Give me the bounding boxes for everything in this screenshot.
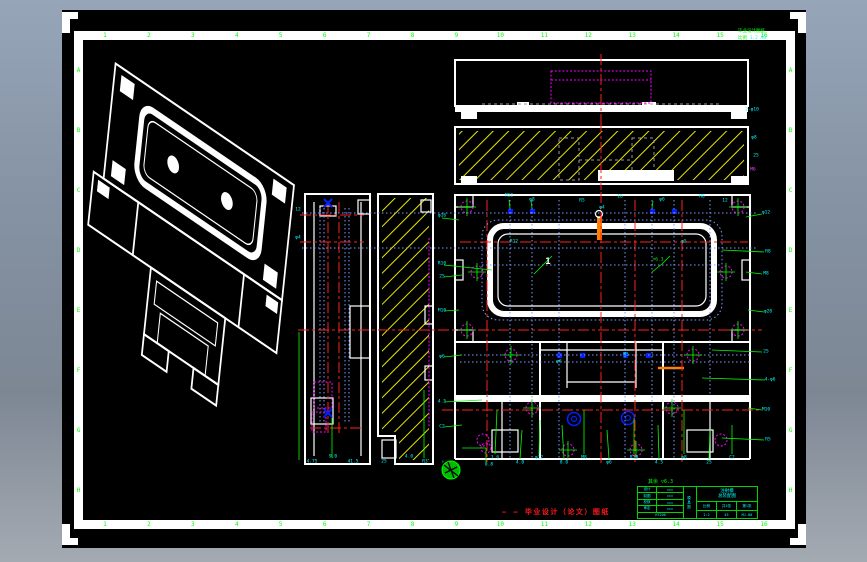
zone-label: 7 (347, 31, 391, 40)
material-code: HT200 (638, 513, 683, 518)
zone-label: B (786, 100, 795, 160)
role-label: 校核 (638, 500, 657, 505)
zone-numbers-top: 12345678910111213141516 (83, 31, 786, 40)
zone-label: 5 (259, 31, 303, 40)
drawing-code: MJ-00 (737, 511, 757, 518)
zone-label: 15 (698, 31, 742, 40)
zone-label: E (74, 280, 83, 340)
stamp-symbol (442, 461, 460, 479)
zone-label: 2 (127, 520, 171, 529)
surface-finish-note: 其余 ▽6.3 (648, 478, 673, 485)
cad-drawing-canvas[interactable]: 12345678910111213141516 1234567891011121… (62, 10, 806, 548)
zone-label: D (74, 220, 83, 280)
sheet-note-line2-value: 1:2 A0 (750, 36, 766, 41)
zone-label: 12 (566, 31, 610, 40)
side-view-left-hatched (378, 194, 433, 464)
zone-label: 12 (566, 520, 610, 529)
role-value: ××× (657, 487, 683, 492)
zone-label: 11 (522, 31, 566, 40)
zone-label: 13 (610, 31, 654, 40)
zone-label: H (786, 460, 795, 520)
title-block: 设计 ××× 制图 ××× 校核 ××× 审定 ××× HT200 模具图 注射… (637, 486, 758, 519)
zone-label: 4 (215, 31, 259, 40)
zone-label: 8 (391, 31, 435, 40)
zone-label: 14 (654, 520, 698, 529)
zone-label: 14 (654, 31, 698, 40)
zone-label: 6 (303, 31, 347, 40)
zone-label: 9 (435, 31, 479, 40)
corner-mark-tr (790, 12, 806, 33)
role-value: ××× (657, 500, 683, 505)
zone-label: 16 (742, 520, 786, 529)
zone-label: 15 (698, 520, 742, 529)
zone-label: 3 (171, 31, 215, 40)
material-value: 45 (717, 511, 737, 518)
sheets-total: 共1张 (717, 502, 737, 511)
zone-label: 11 (522, 520, 566, 529)
zone-label: 1 (83, 31, 127, 40)
zone-label: 7 (347, 520, 391, 529)
zone-label: E (786, 280, 795, 340)
zone-label: 4 (215, 520, 259, 529)
sheet-number: 第1张 (737, 502, 757, 511)
zone-label: A (74, 40, 83, 100)
side-view-left (299, 194, 370, 464)
section-marks (508, 209, 677, 358)
zone-label: F (74, 340, 83, 400)
title-block-mid-column: 模具图 (684, 487, 697, 518)
isometric-view (79, 57, 294, 441)
zone-label: 5 (259, 520, 303, 529)
role-value: ××× (657, 493, 683, 498)
section-view-hatched (455, 122, 748, 190)
zone-label: G (786, 400, 795, 460)
role-label: 设计 (638, 487, 657, 492)
role-label: 审定 (638, 506, 657, 511)
zone-letters-left: ABCDEFGH (74, 40, 83, 520)
sheet-note-line1: 毕业设计图纸 (738, 29, 766, 36)
zone-label: 13 (610, 520, 654, 529)
sheet-note: 毕业设计图纸 比例 1:2 A0 (738, 29, 766, 43)
zone-label: C (786, 160, 795, 220)
centerlines (298, 192, 762, 465)
side-view-top-plate (455, 54, 748, 124)
plan-view (455, 195, 750, 459)
drawing-caption: — — 毕业设计（论文）图纸 (502, 507, 610, 517)
zone-label: 10 (478, 31, 522, 40)
scale-label: 比例 (697, 502, 717, 511)
cad-viewer-window: { "window": { "background_top": "#96a5b8… (0, 0, 867, 562)
sheet-note-line2: 比例 (738, 36, 747, 41)
zone-label: D (786, 220, 795, 280)
zone-label: 1 (83, 520, 127, 529)
zone-numbers-bottom: 12345678910111213141516 (83, 520, 786, 529)
zone-letters-right: ABCDEFGH (786, 40, 795, 520)
zone-label: 6 (303, 520, 347, 529)
role-label: 制图 (638, 493, 657, 498)
role-value: ××× (657, 506, 683, 511)
corner-mark-tl (62, 12, 78, 33)
title-block-material-row: HT200 (638, 513, 683, 518)
drawing-title-line2: 总装配图 (718, 494, 736, 499)
zone-label: B (74, 100, 83, 160)
zone-label: C (74, 160, 83, 220)
zone-label: 8 (391, 520, 435, 529)
zone-label: G (74, 400, 83, 460)
zone-label: F (786, 340, 795, 400)
cad-drawing (62, 10, 806, 548)
zone-label: 10 (478, 520, 522, 529)
zone-label: A (786, 40, 795, 100)
zone-label: 2 (127, 31, 171, 40)
scale-value: 1:2 (697, 511, 717, 518)
zone-label: H (74, 460, 83, 520)
zone-label: 3 (171, 520, 215, 529)
zone-label: 9 (435, 520, 479, 529)
